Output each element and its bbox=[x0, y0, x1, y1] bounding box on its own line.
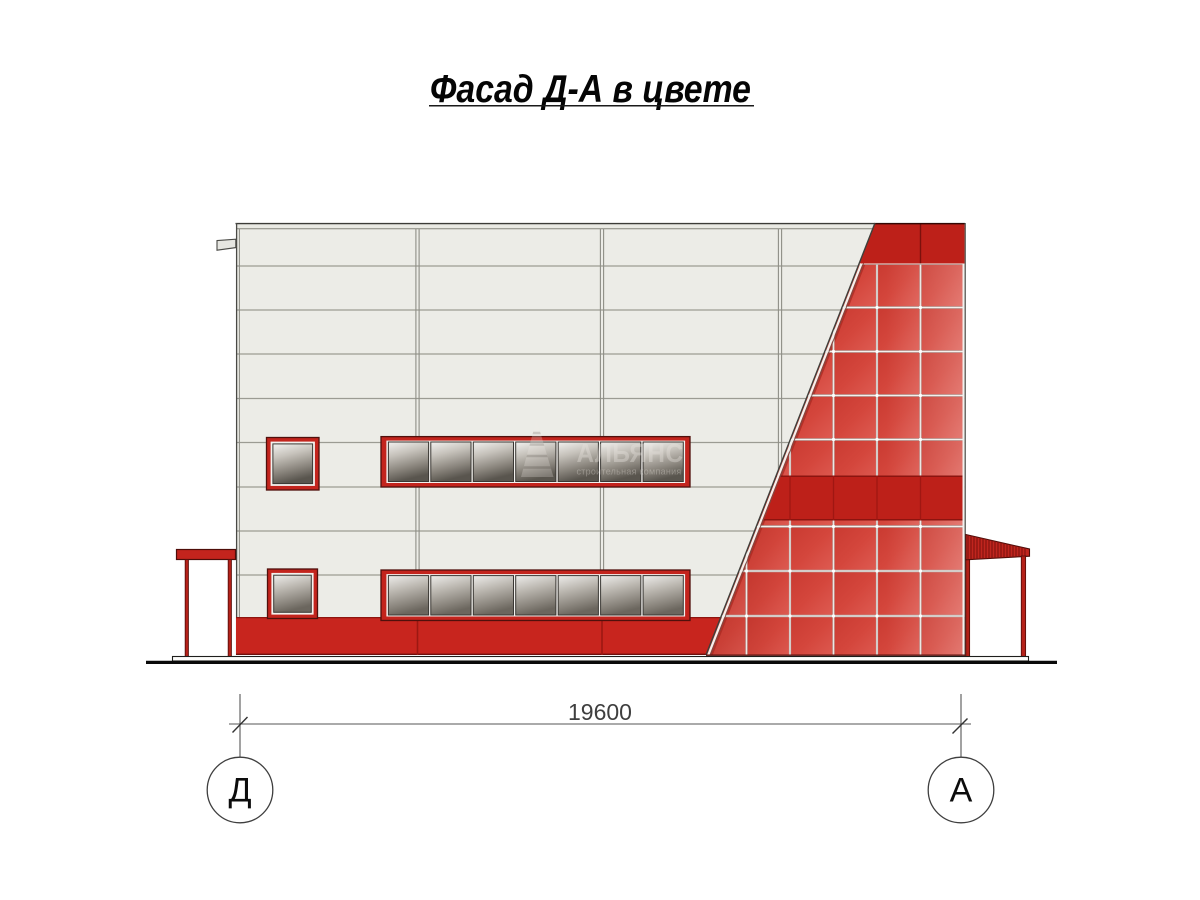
svg-text:Фасад Д-А в цвете: Фасад Д-А в цвете bbox=[430, 68, 751, 111]
svg-text:Д: Д bbox=[228, 772, 251, 810]
svg-text:строительная компания: строительная компания bbox=[577, 467, 682, 478]
svg-text:АЛЬЯНС: АЛЬЯНС bbox=[577, 438, 684, 468]
svg-text:19600: 19600 bbox=[568, 699, 632, 725]
svg-text:А: А bbox=[950, 772, 973, 810]
